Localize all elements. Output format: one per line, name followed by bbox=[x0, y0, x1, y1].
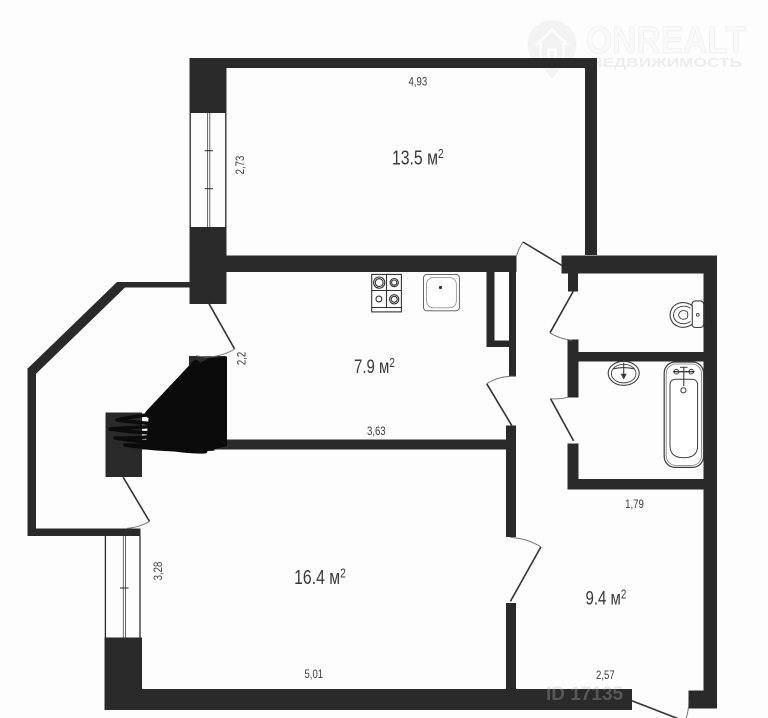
svg-text:2,2: 2,2 bbox=[236, 352, 249, 365]
svg-text:13.5 м2: 13.5 м2 bbox=[392, 147, 444, 169]
svg-text:ID 17135: ID 17135 bbox=[546, 684, 624, 705]
svg-text:3,28: 3,28 bbox=[152, 562, 165, 581]
svg-text:2,73: 2,73 bbox=[234, 156, 247, 175]
svg-text:2,57: 2,57 bbox=[596, 669, 615, 682]
svg-text:4,93: 4,93 bbox=[409, 76, 428, 89]
svg-text:5,01: 5,01 bbox=[304, 668, 323, 681]
svg-text:16.4 м2: 16.4 м2 bbox=[294, 566, 346, 588]
svg-text:1,79: 1,79 bbox=[625, 498, 644, 511]
svg-text:НЕДВИЖИМОСТЬ: НЕДВИЖИМОСТЬ bbox=[590, 55, 742, 70]
svg-text:9.4 м2: 9.4 м2 bbox=[585, 588, 626, 609]
svg-text:3,63: 3,63 bbox=[367, 425, 386, 438]
svg-text:7.9 м2: 7.9 м2 bbox=[354, 356, 395, 377]
